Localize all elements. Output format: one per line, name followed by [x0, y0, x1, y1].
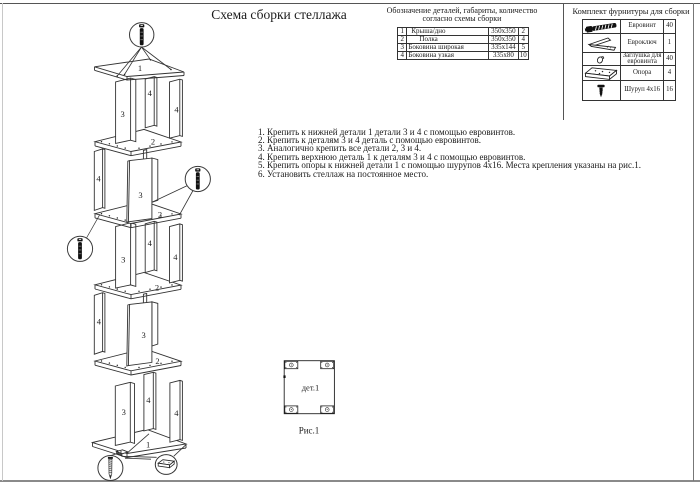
svg-text:1: 1 [146, 440, 150, 450]
svg-text:3: 3 [120, 109, 124, 119]
svg-text:4: 4 [173, 252, 178, 262]
svg-text:3: 3 [138, 190, 142, 200]
svg-text:1: 1 [138, 63, 142, 73]
svg-text:4: 4 [97, 317, 102, 327]
svg-text:2: 2 [158, 210, 162, 220]
svg-text:2: 2 [155, 356, 159, 366]
svg-text:3: 3 [122, 407, 126, 417]
svg-text:3: 3 [141, 330, 145, 340]
svg-text:дет.1: дет.1 [302, 383, 320, 393]
svg-text:4: 4 [174, 408, 179, 418]
svg-text:3: 3 [121, 255, 125, 265]
svg-text:2: 2 [151, 137, 155, 147]
svg-text:4: 4 [146, 395, 151, 405]
svg-text:2: 2 [155, 282, 159, 292]
svg-text:Рис.1: Рис.1 [299, 426, 320, 436]
svg-text:4: 4 [148, 88, 153, 98]
svg-text:4: 4 [148, 238, 153, 248]
